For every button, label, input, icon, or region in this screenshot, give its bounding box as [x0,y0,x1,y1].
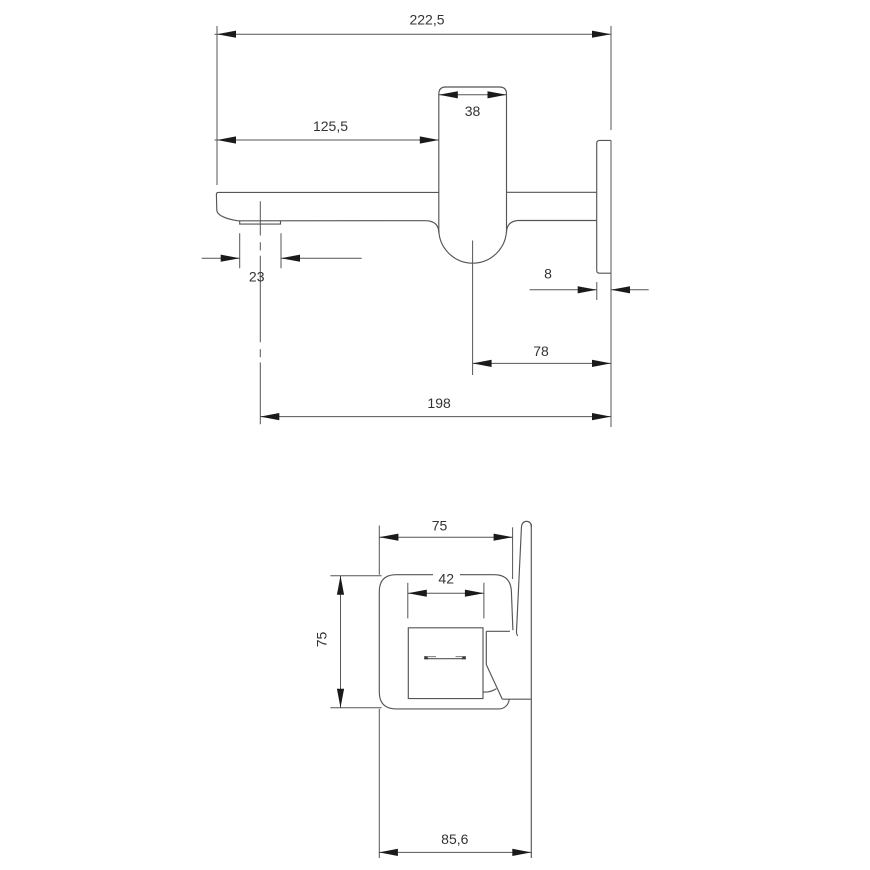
svg-text:78: 78 [533,343,549,359]
svg-text:198: 198 [427,395,451,411]
svg-text:125,5: 125,5 [313,118,348,134]
svg-text:8: 8 [544,266,552,282]
svg-text:75: 75 [432,518,448,534]
svg-text:23: 23 [249,269,265,285]
svg-text:85,6: 85,6 [441,831,468,847]
svg-text:38: 38 [465,103,481,119]
svg-text:42: 42 [438,571,454,587]
svg-text:222,5: 222,5 [409,11,444,27]
svg-text:75: 75 [314,632,330,648]
